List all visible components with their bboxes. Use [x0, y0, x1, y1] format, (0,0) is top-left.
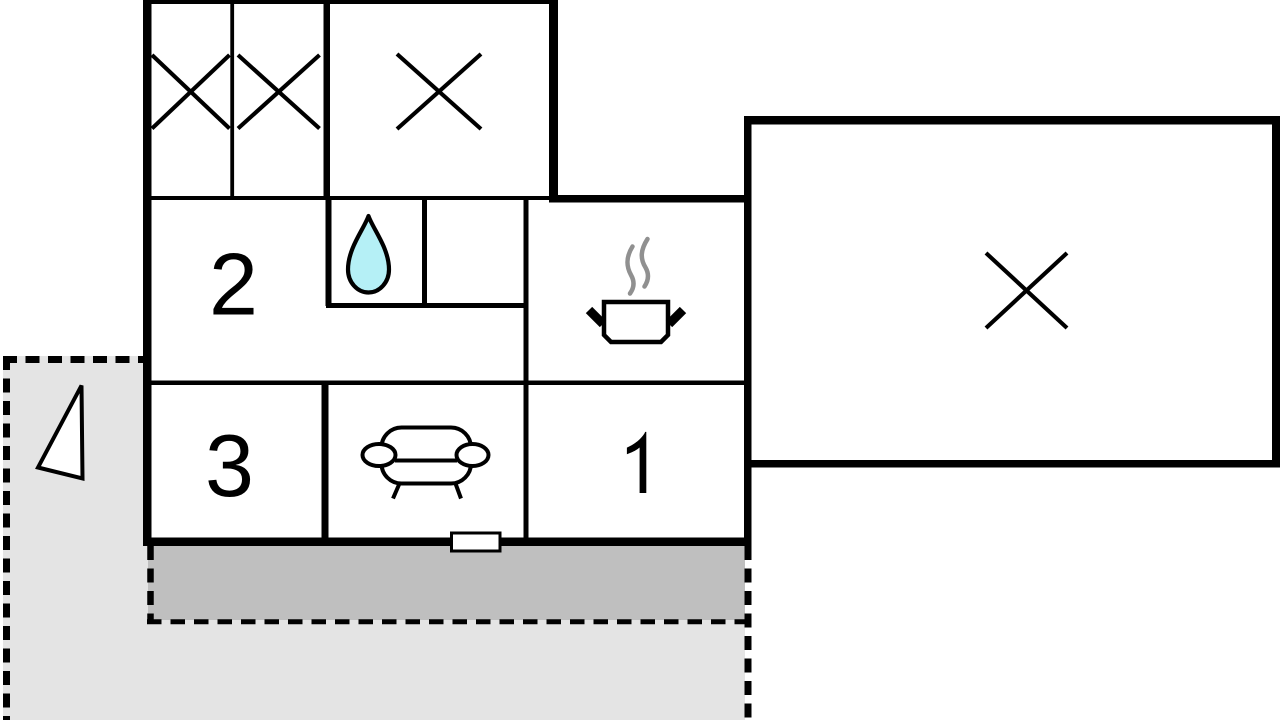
svg-text:2: 2 — [209, 235, 258, 334]
svg-text:3: 3 — [205, 416, 254, 515]
